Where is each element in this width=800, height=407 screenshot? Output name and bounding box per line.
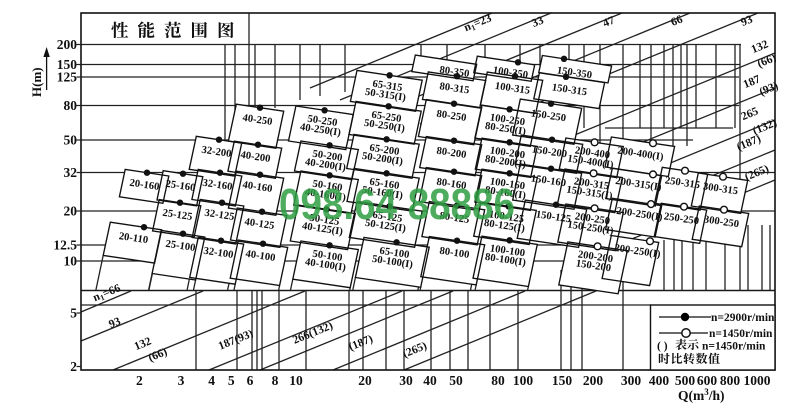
svg-text:n=2900r/min: n=2900r/min (711, 312, 775, 324)
svg-text:50: 50 (449, 373, 463, 388)
svg-text:30: 30 (399, 373, 413, 388)
svg-text:2: 2 (70, 359, 77, 374)
svg-text:6: 6 (247, 373, 254, 388)
svg-text:4: 4 (208, 373, 215, 388)
svg-text:1000: 1000 (744, 373, 771, 388)
svg-text:10: 10 (289, 373, 303, 388)
svg-text:300: 300 (621, 373, 642, 388)
svg-text:10: 10 (64, 254, 78, 269)
svg-text:2: 2 (136, 373, 143, 388)
svg-text:n=1450r/min: n=1450r/min (709, 328, 773, 340)
svg-text:32: 32 (64, 165, 78, 180)
svg-text:20: 20 (358, 373, 372, 388)
svg-text:5: 5 (228, 373, 235, 388)
svg-text:100: 100 (513, 373, 534, 388)
svg-text:Q(m3/h): Q(m3/h) (678, 387, 725, 403)
svg-text:500: 500 (675, 373, 696, 388)
svg-text:125: 125 (57, 70, 78, 85)
svg-text:( ): ( ) (657, 341, 668, 353)
svg-text:5: 5 (70, 306, 77, 321)
svg-text:3: 3 (178, 373, 185, 388)
svg-text:40: 40 (423, 373, 437, 388)
svg-text:200: 200 (583, 373, 604, 388)
svg-text:12.5: 12.5 (53, 238, 77, 253)
svg-text:20: 20 (64, 204, 78, 219)
svg-text:80: 80 (64, 98, 78, 113)
svg-text:50: 50 (64, 133, 78, 148)
svg-text:200: 200 (57, 37, 78, 52)
svg-text:8: 8 (272, 373, 279, 388)
svg-text:H(m): H(m) (29, 67, 44, 97)
svg-text:80: 80 (491, 373, 505, 388)
svg-text:150: 150 (552, 373, 573, 388)
svg-text:600: 600 (697, 373, 718, 388)
svg-text:800: 800 (720, 373, 741, 388)
svg-text:400: 400 (649, 373, 670, 388)
svg-text:n=1450r/min: n=1450r/min (702, 341, 766, 353)
svg-text:098.64 88886: 098.64 88886 (279, 180, 515, 229)
